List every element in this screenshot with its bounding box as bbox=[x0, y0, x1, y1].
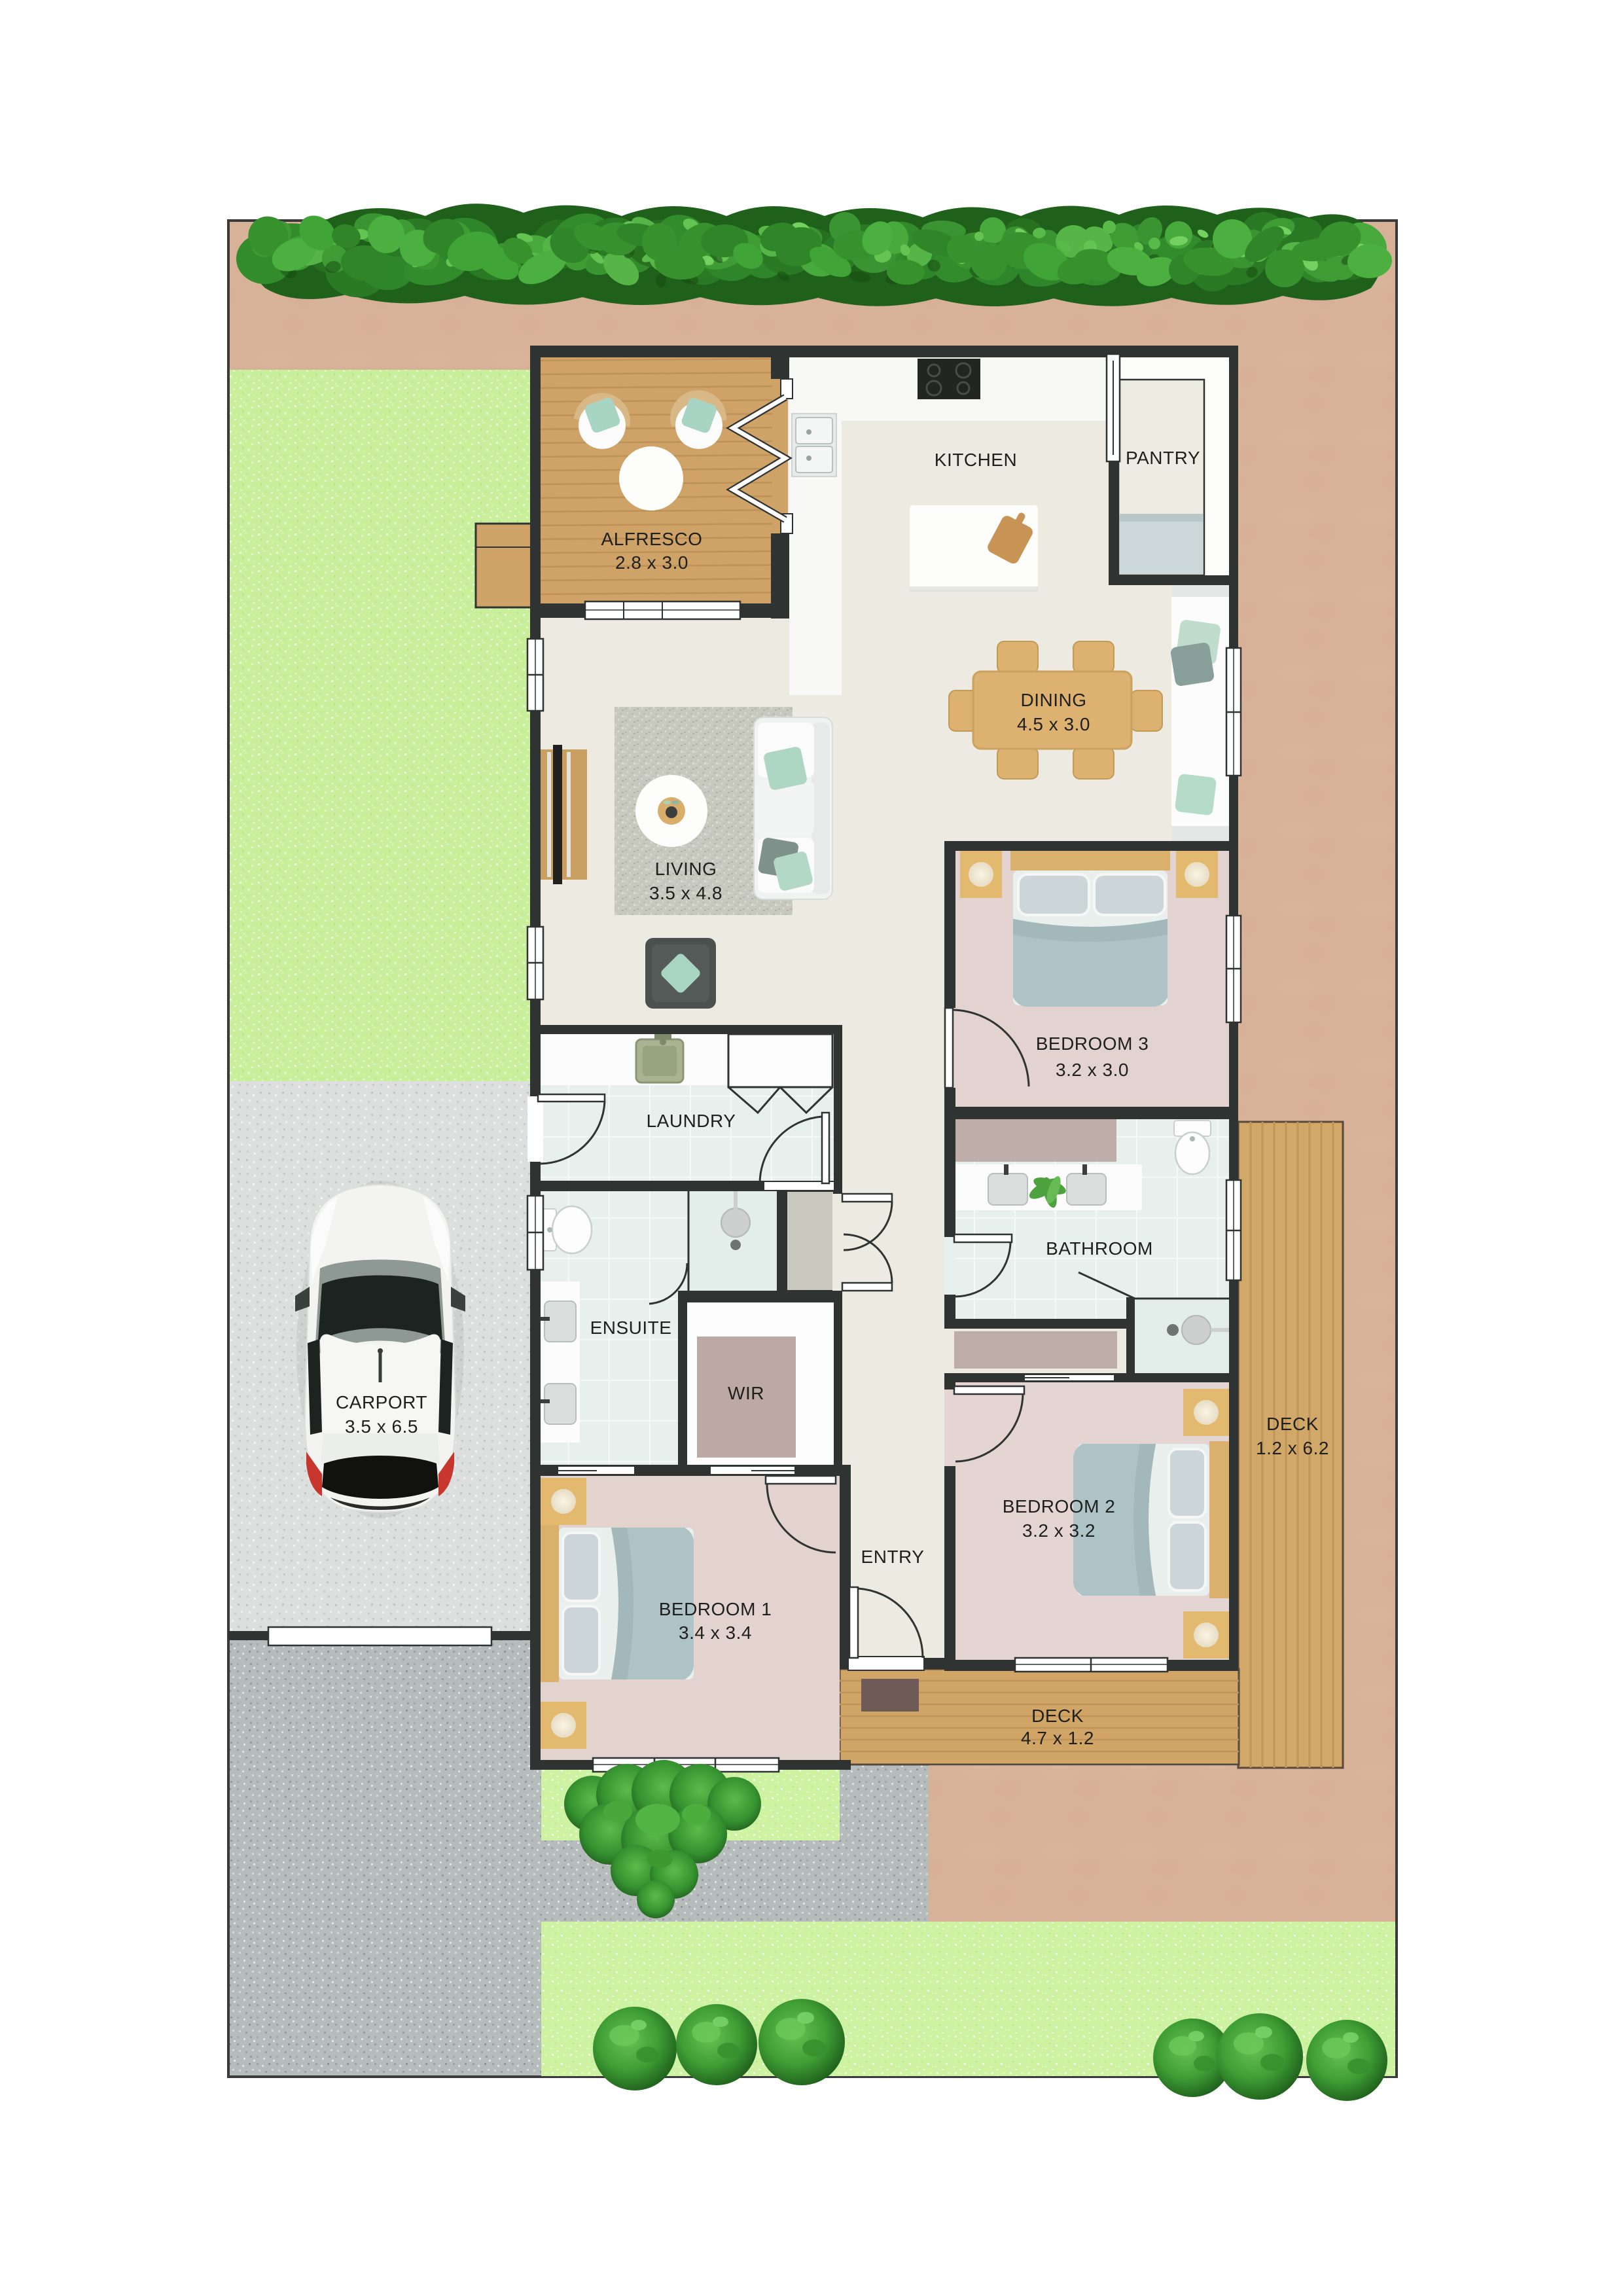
svg-text:DINING: DINING bbox=[1021, 690, 1087, 710]
svg-text:2.8 x 3.0: 2.8 x 3.0 bbox=[615, 552, 688, 573]
svg-text:KITCHEN: KITCHEN bbox=[935, 450, 1017, 470]
svg-text:BEDROOM 1: BEDROOM 1 bbox=[659, 1599, 772, 1619]
svg-text:ALFRESCO: ALFRESCO bbox=[601, 529, 703, 549]
svg-text:LAUNDRY: LAUNDRY bbox=[647, 1111, 736, 1131]
svg-text:3.4 x 3.4: 3.4 x 3.4 bbox=[679, 1623, 752, 1643]
svg-text:3.2 x 3.2: 3.2 x 3.2 bbox=[1022, 1520, 1096, 1541]
svg-text:3.2 x 3.0: 3.2 x 3.0 bbox=[1056, 1060, 1129, 1080]
svg-text:BATHROOM: BATHROOM bbox=[1046, 1238, 1153, 1259]
svg-text:DECK: DECK bbox=[1031, 1706, 1084, 1726]
svg-text:3.5 x 4.8: 3.5 x 4.8 bbox=[649, 883, 722, 903]
svg-text:1.2 x 6.2: 1.2 x 6.2 bbox=[1256, 1438, 1329, 1458]
svg-text:LIVING: LIVING bbox=[655, 859, 717, 879]
svg-text:ENSUITE: ENSUITE bbox=[590, 1318, 672, 1338]
svg-text:3.5 x 6.5: 3.5 x 6.5 bbox=[345, 1416, 418, 1437]
svg-text:ENTRY: ENTRY bbox=[861, 1547, 925, 1567]
svg-text:BEDROOM 3: BEDROOM 3 bbox=[1036, 1033, 1149, 1054]
svg-text:WIR: WIR bbox=[728, 1383, 764, 1403]
svg-text:DECK: DECK bbox=[1266, 1414, 1319, 1434]
svg-text:4.7 x 1.2: 4.7 x 1.2 bbox=[1021, 1728, 1094, 1748]
svg-text:BEDROOM 2: BEDROOM 2 bbox=[1003, 1496, 1116, 1516]
svg-text:PANTRY: PANTRY bbox=[1126, 448, 1200, 468]
svg-text:4.5 x 3.0: 4.5 x 3.0 bbox=[1017, 714, 1090, 734]
svg-text:CARPORT: CARPORT bbox=[336, 1392, 427, 1412]
